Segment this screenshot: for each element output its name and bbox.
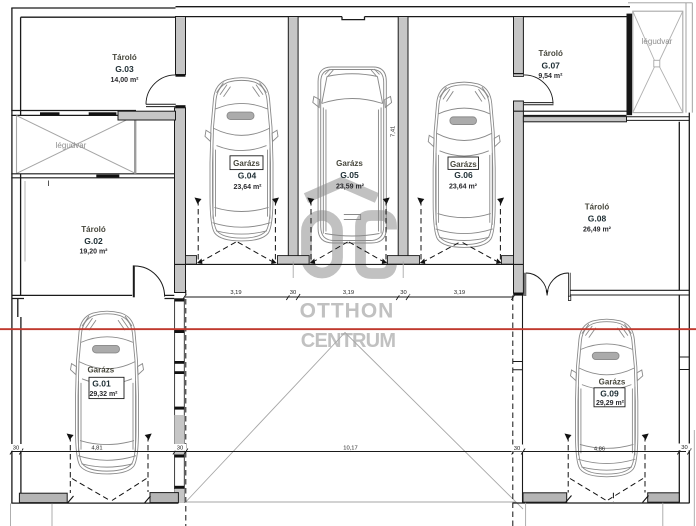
svg-text:Garázs: Garázs: [336, 159, 363, 168]
svg-text:G.02: G.02: [84, 236, 103, 246]
svg-text:légudvar: légudvar: [56, 141, 87, 150]
svg-text:légudvar: légudvar: [642, 37, 673, 46]
svg-text:30: 30: [13, 446, 19, 452]
svg-text:23,59 m²: 23,59 m²: [336, 184, 365, 191]
svg-text:19,20 m²: 19,20 m²: [79, 249, 108, 256]
svg-text:G.07: G.07: [541, 61, 560, 71]
svg-text:30: 30: [400, 290, 406, 296]
svg-text:G.01: G.01: [92, 379, 111, 389]
svg-text:26,49 m²: 26,49 m²: [583, 226, 612, 233]
svg-text:Garázs: Garázs: [233, 159, 260, 168]
svg-text:30: 30: [681, 445, 687, 451]
svg-text:14,00 m²: 14,00 m²: [110, 77, 139, 84]
svg-text:29,29 m²: 29,29 m²: [596, 400, 625, 407]
svg-text:Tároló: Tároló: [112, 53, 137, 62]
svg-text:Garázs: Garázs: [450, 160, 477, 169]
svg-text:3,19: 3,19: [454, 290, 465, 296]
svg-text:30: 30: [290, 290, 296, 296]
svg-text:Garázs: Garázs: [87, 366, 114, 375]
svg-text:3,19: 3,19: [343, 290, 354, 296]
svg-text:Tároló: Tároló: [585, 202, 610, 211]
svg-text:G.09: G.09: [600, 389, 619, 399]
svg-text:Garázs: Garázs: [599, 378, 626, 387]
svg-text:23,64 m²: 23,64 m²: [449, 184, 478, 191]
svg-text:OTTHON: OTTHON: [300, 300, 395, 323]
svg-text:4,81: 4,81: [91, 446, 102, 452]
svg-text:Tároló: Tároló: [81, 225, 106, 234]
svg-text:30: 30: [514, 446, 520, 452]
svg-text:G.06: G.06: [454, 170, 473, 180]
svg-text:30: 30: [177, 446, 183, 452]
svg-text:G.04: G.04: [238, 171, 257, 181]
svg-text:G.05: G.05: [340, 170, 359, 180]
svg-text:23,64 m²: 23,64 m²: [233, 184, 262, 191]
svg-text:Tároló: Tároló: [538, 49, 563, 58]
svg-text:10,17: 10,17: [343, 446, 358, 452]
svg-text:CENTRUM: CENTRUM: [301, 330, 396, 352]
svg-text:G.03: G.03: [115, 64, 134, 74]
svg-text:G.08: G.08: [588, 214, 607, 224]
svg-text:29,32 m²: 29,32 m²: [89, 391, 118, 398]
svg-text:4,86: 4,86: [594, 447, 605, 453]
svg-text:9,54 m²: 9,54 m²: [538, 73, 563, 80]
svg-text:3,19: 3,19: [230, 290, 241, 296]
svg-text:7,41: 7,41: [391, 126, 397, 137]
